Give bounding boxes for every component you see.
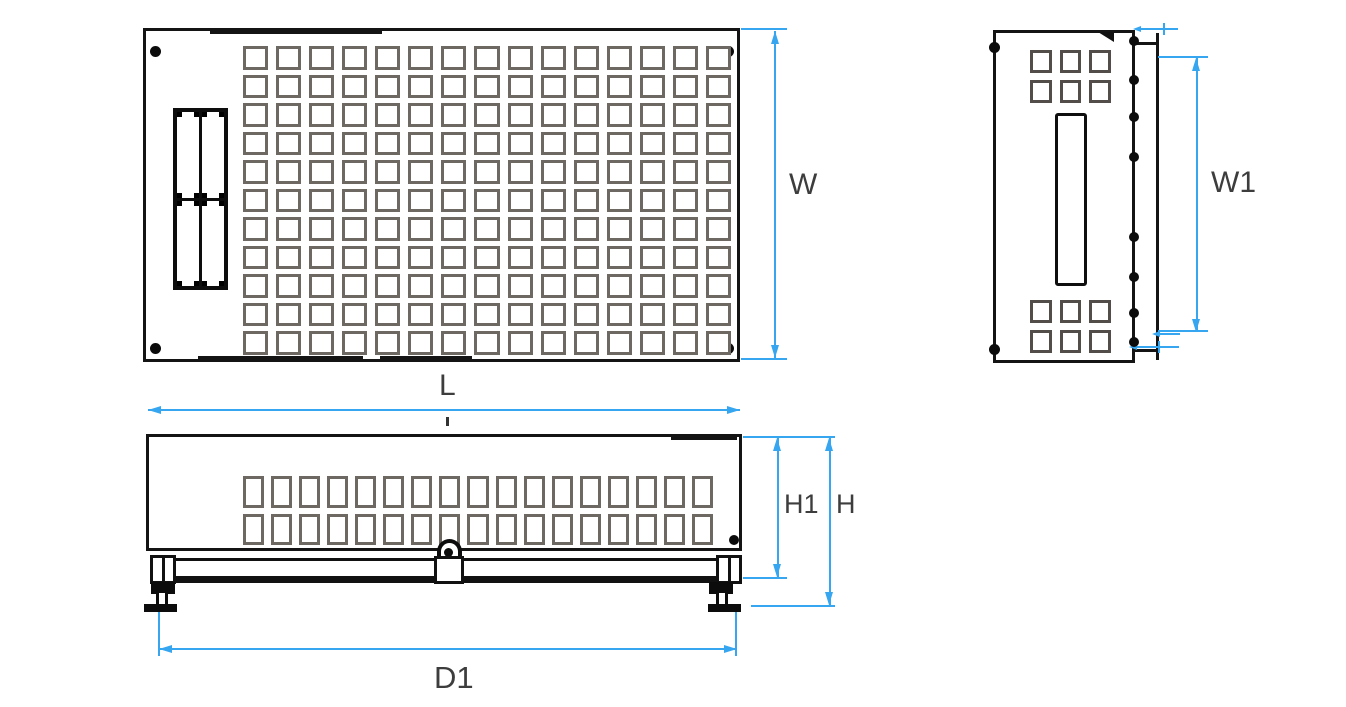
vent-hole xyxy=(706,217,731,241)
vent-hole xyxy=(574,274,599,298)
vent-hole xyxy=(541,103,566,127)
vent-hole xyxy=(474,189,499,213)
dimension-drawing: W W1 L xyxy=(0,0,1346,707)
vent-hole xyxy=(508,46,533,70)
vent-hole xyxy=(276,46,301,70)
vent-hole xyxy=(408,303,433,327)
vent-hole xyxy=(574,331,599,355)
vent-hole xyxy=(640,274,665,298)
vent-hole xyxy=(408,103,433,127)
vent-hole xyxy=(608,476,629,508)
vent-hole xyxy=(574,217,599,241)
vent-hole xyxy=(640,303,665,327)
vent-hole xyxy=(706,132,731,156)
vent-hole xyxy=(309,217,334,241)
vent-hole xyxy=(375,274,400,298)
vent-hole xyxy=(706,274,731,298)
vent-hole xyxy=(541,160,566,184)
vent-hole xyxy=(439,476,460,508)
vent-hole xyxy=(607,103,632,127)
edge-bump xyxy=(1129,36,1139,46)
vent-hole xyxy=(276,75,301,99)
vent-hole xyxy=(640,189,665,213)
corner-screw xyxy=(989,42,1000,53)
vent-hole xyxy=(375,303,400,327)
vent-hole xyxy=(607,217,632,241)
vent-hole xyxy=(607,189,632,213)
vent-hole xyxy=(640,132,665,156)
vent-hole xyxy=(276,246,301,270)
vent-hole xyxy=(541,246,566,270)
vent-hole xyxy=(355,476,376,508)
foot-right-base xyxy=(708,604,741,612)
vent-hole xyxy=(574,189,599,213)
vent-hole xyxy=(1060,50,1082,73)
vent-hole xyxy=(474,103,499,127)
vent-hole xyxy=(508,189,533,213)
vent-hole xyxy=(474,46,499,70)
corner-screw xyxy=(989,344,1000,355)
handle-panel xyxy=(177,112,199,198)
dimension-label-h: H xyxy=(836,487,856,521)
vent-hole xyxy=(243,132,268,156)
vent-hole xyxy=(574,75,599,99)
front-screw xyxy=(729,535,739,545)
vent-hole xyxy=(508,217,533,241)
vent-hole xyxy=(607,46,632,70)
vent-hole xyxy=(243,476,264,508)
vent-hole xyxy=(299,476,320,508)
vent-hole xyxy=(243,246,268,270)
vent-hole xyxy=(375,189,400,213)
vent-hole xyxy=(441,103,466,127)
vent-hole xyxy=(342,103,367,127)
vent-hole xyxy=(508,103,533,127)
vent-hole xyxy=(276,303,301,327)
dim-w-ext-top xyxy=(741,28,787,30)
top-view xyxy=(143,28,740,362)
dim-w-ext-bottom xyxy=(741,358,787,360)
vent-hole xyxy=(441,160,466,184)
vent-hole xyxy=(541,331,566,355)
panel-seam xyxy=(380,356,472,362)
vent-hole xyxy=(309,331,334,355)
vent-hole xyxy=(640,46,665,70)
vent-hole xyxy=(607,331,632,355)
vent-hole xyxy=(408,160,433,184)
panel-seam xyxy=(671,435,737,440)
arrow-right-icon xyxy=(727,406,740,414)
dim-w1-line xyxy=(1196,58,1198,332)
vent-hole xyxy=(1030,300,1052,323)
vent-hole xyxy=(508,303,533,327)
vent-hole xyxy=(552,476,573,508)
vent-hole xyxy=(574,303,599,327)
vent-hole xyxy=(524,514,545,546)
top-vent-grid xyxy=(243,46,731,355)
dim-h-ext-top xyxy=(743,436,835,438)
rail-bracket-left xyxy=(150,555,176,584)
vent-hole xyxy=(309,160,334,184)
vent-hole xyxy=(474,274,499,298)
vent-hole xyxy=(607,246,632,270)
vent-hole xyxy=(673,160,698,184)
vent-hole xyxy=(673,274,698,298)
vent-hole xyxy=(243,217,268,241)
vent-hole xyxy=(1060,80,1082,103)
dim-l-line xyxy=(148,409,740,411)
vent-hole xyxy=(474,246,499,270)
vent-hole xyxy=(664,476,685,508)
vent-hole xyxy=(375,160,400,184)
arrow-right-icon xyxy=(724,645,737,653)
vent-hole xyxy=(309,303,334,327)
vent-hole xyxy=(276,103,301,127)
vent-hole xyxy=(640,103,665,127)
vent-hole xyxy=(474,217,499,241)
vent-hole xyxy=(474,331,499,355)
vent-hole xyxy=(467,514,488,546)
vent-hole xyxy=(640,217,665,241)
vent-hole xyxy=(706,331,731,355)
vent-hole xyxy=(342,189,367,213)
vent-hole xyxy=(541,303,566,327)
vent-hole xyxy=(355,514,376,546)
vent-hole xyxy=(474,160,499,184)
vent-hole xyxy=(309,189,334,213)
vent-hole xyxy=(243,46,268,70)
vent-hole xyxy=(243,331,268,355)
vent-hole xyxy=(276,189,301,213)
vent-hole xyxy=(706,103,731,127)
vent-hole xyxy=(580,514,601,546)
vent-hole xyxy=(342,303,367,327)
arrow-up-icon xyxy=(825,438,833,451)
vent-hole xyxy=(574,246,599,270)
vent-hole xyxy=(375,132,400,156)
arrow-left-icon xyxy=(159,645,172,653)
vent-hole xyxy=(276,160,301,184)
vent-hole xyxy=(309,75,334,99)
vent-hole xyxy=(408,46,433,70)
handle-panel xyxy=(202,112,224,198)
vent-hole xyxy=(1089,330,1111,353)
latch-box xyxy=(434,556,464,584)
edge-bump xyxy=(1129,112,1139,122)
vent-hole xyxy=(607,303,632,327)
vent-hole xyxy=(243,274,268,298)
side-outer-edge xyxy=(1156,33,1159,360)
vent-hole xyxy=(574,132,599,156)
dim-h-line xyxy=(829,438,831,605)
foot-left-base xyxy=(144,604,177,612)
vent-hole xyxy=(574,46,599,70)
dim-h-ext-bottom xyxy=(751,605,835,607)
vent-hole xyxy=(441,75,466,99)
vent-hole xyxy=(607,132,632,156)
dimension-label-w1: W1 xyxy=(1211,166,1256,200)
vent-hole xyxy=(342,132,367,156)
edge-bump xyxy=(1129,232,1139,242)
vent-hole xyxy=(1089,80,1111,103)
vent-hole xyxy=(342,75,367,99)
corner-screw xyxy=(150,46,161,57)
dimension-label-w: W xyxy=(789,168,817,202)
vent-hole xyxy=(541,217,566,241)
rail-bracket-right xyxy=(716,555,742,584)
vent-hole xyxy=(706,189,731,213)
vent-hole xyxy=(375,331,400,355)
vent-hole xyxy=(271,476,292,508)
vent-hole xyxy=(342,46,367,70)
vent-hole xyxy=(474,303,499,327)
arrow-left-icon xyxy=(1133,26,1141,32)
front-vent-grid xyxy=(243,476,713,545)
vent-hole xyxy=(608,514,629,546)
vent-hole xyxy=(580,476,601,508)
vent-hole xyxy=(574,103,599,127)
vent-hole xyxy=(383,514,404,546)
vent-hole xyxy=(375,75,400,99)
vent-hole xyxy=(327,514,348,546)
vent-hole xyxy=(508,160,533,184)
dim-h1-line xyxy=(777,438,779,577)
vent-hole xyxy=(243,514,264,546)
dim-w1-tick xyxy=(1158,341,1160,353)
vent-hole xyxy=(411,476,432,508)
vent-hole xyxy=(327,476,348,508)
vent-hole xyxy=(309,246,334,270)
vent-hole xyxy=(1089,300,1111,323)
arrow-left-icon xyxy=(1152,331,1160,337)
vent-hole xyxy=(342,160,367,184)
vent-hole xyxy=(552,514,573,546)
vent-hole xyxy=(375,46,400,70)
vent-hole xyxy=(408,274,433,298)
vent-hole xyxy=(541,75,566,99)
vent-hole xyxy=(607,75,632,99)
vent-hole xyxy=(383,476,404,508)
vent-hole xyxy=(441,303,466,327)
vent-hole xyxy=(508,75,533,99)
vent-hole xyxy=(411,514,432,546)
dim-w1-tick xyxy=(1163,23,1165,35)
vent-hole xyxy=(299,514,320,546)
vent-hole xyxy=(541,274,566,298)
vent-hole xyxy=(1060,330,1082,353)
vent-hole xyxy=(342,274,367,298)
vent-hole xyxy=(243,103,268,127)
side-edge-connector xyxy=(1135,349,1158,352)
vent-hole xyxy=(640,75,665,99)
arrow-up-icon xyxy=(771,31,779,44)
vent-hole xyxy=(541,132,566,156)
edge-bump xyxy=(1129,337,1139,347)
handle-panel xyxy=(177,201,199,287)
vent-hole xyxy=(508,331,533,355)
vent-hole xyxy=(640,160,665,184)
vent-hole xyxy=(496,476,517,508)
vent-hole xyxy=(673,75,698,99)
vent-hole xyxy=(408,331,433,355)
vent-hole xyxy=(640,331,665,355)
vent-hole xyxy=(692,514,713,546)
vent-hole xyxy=(706,303,731,327)
panel-seam xyxy=(210,28,382,34)
vent-hole xyxy=(276,331,301,355)
vent-hole xyxy=(607,160,632,184)
vent-hole xyxy=(467,476,488,508)
vent-hole xyxy=(271,514,292,546)
vent-hole xyxy=(408,189,433,213)
vent-hole xyxy=(508,132,533,156)
side-slot xyxy=(1055,113,1087,286)
dim-w1-ext-top xyxy=(1158,56,1208,58)
edge-bump xyxy=(1129,272,1139,282)
arrow-down-icon xyxy=(773,564,781,577)
dim-w-line xyxy=(774,31,776,358)
vent-hole xyxy=(276,274,301,298)
dim-w1-ext-bottom xyxy=(1158,330,1208,332)
corner-wedge xyxy=(1098,32,1114,42)
vent-hole xyxy=(541,46,566,70)
vent-hole xyxy=(673,189,698,213)
dim-w1-tick-bottom-a xyxy=(1160,333,1180,335)
vent-hole xyxy=(375,246,400,270)
arrow-down-icon xyxy=(771,345,779,358)
vent-hole xyxy=(243,303,268,327)
vent-hole xyxy=(673,303,698,327)
side-vent-grid-top xyxy=(1030,50,1111,103)
vent-hole xyxy=(496,514,517,546)
vent-hole xyxy=(309,274,334,298)
vent-hole xyxy=(1030,50,1052,73)
vent-hole xyxy=(607,274,632,298)
vent-hole xyxy=(706,46,731,70)
dim-h1-ext-bottom xyxy=(743,577,787,579)
vent-hole xyxy=(673,132,698,156)
arrow-up-icon xyxy=(773,438,781,451)
vent-hole xyxy=(524,476,545,508)
vent-hole xyxy=(276,217,301,241)
front-view xyxy=(146,434,742,551)
vent-hole xyxy=(441,274,466,298)
vent-hole xyxy=(342,217,367,241)
vent-hole xyxy=(243,75,268,99)
dimension-label-d1: D1 xyxy=(434,661,474,695)
vent-hole xyxy=(441,189,466,213)
dim-d1-line xyxy=(159,648,737,650)
vent-hole xyxy=(243,160,268,184)
vent-hole xyxy=(1030,330,1052,353)
vent-hole xyxy=(441,246,466,270)
vent-hole xyxy=(375,103,400,127)
edge-bump xyxy=(1129,308,1139,318)
dimension-label-l: L xyxy=(439,369,456,403)
vent-hole xyxy=(640,246,665,270)
arrow-down-icon xyxy=(825,592,833,605)
vent-hole xyxy=(1030,80,1052,103)
edge-bump xyxy=(1129,75,1139,85)
vent-hole xyxy=(636,476,657,508)
vent-hole xyxy=(375,217,400,241)
vent-hole xyxy=(508,246,533,270)
panel-seam xyxy=(198,356,363,362)
center-tick xyxy=(446,417,449,426)
vent-hole xyxy=(706,160,731,184)
side-view xyxy=(993,30,1135,363)
vent-hole xyxy=(664,514,685,546)
vent-hole xyxy=(1089,50,1111,73)
vent-hole xyxy=(342,331,367,355)
vent-hole xyxy=(408,217,433,241)
vent-hole xyxy=(673,46,698,70)
vent-hole xyxy=(574,160,599,184)
vent-hole xyxy=(441,331,466,355)
vent-hole xyxy=(1060,300,1082,323)
side-vent-grid-bottom xyxy=(1030,300,1111,353)
vent-hole xyxy=(408,75,433,99)
vent-hole xyxy=(636,514,657,546)
vent-hole xyxy=(309,46,334,70)
vent-hole xyxy=(243,189,268,213)
vent-hole xyxy=(706,246,731,270)
vent-hole xyxy=(474,132,499,156)
vent-hole xyxy=(673,331,698,355)
edge-bump xyxy=(1129,152,1139,162)
vent-hole xyxy=(441,217,466,241)
vent-hole xyxy=(441,46,466,70)
vent-hole xyxy=(408,246,433,270)
vent-hole xyxy=(408,132,433,156)
vent-hole xyxy=(309,132,334,156)
arrow-down-icon xyxy=(1192,319,1200,332)
vent-hole xyxy=(692,476,713,508)
vent-hole xyxy=(474,75,499,99)
vent-hole xyxy=(276,132,301,156)
corner-screw xyxy=(150,343,161,354)
vent-hole xyxy=(342,246,367,270)
dim-w1-tick-top xyxy=(1140,28,1178,30)
arrow-left-icon xyxy=(148,406,161,414)
arrow-up-icon xyxy=(1192,58,1200,71)
vent-hole xyxy=(673,217,698,241)
vent-hole xyxy=(673,246,698,270)
dimension-label-h1: H1 xyxy=(784,487,819,521)
vent-hole xyxy=(673,103,698,127)
vent-hole xyxy=(309,103,334,127)
vent-hole xyxy=(508,274,533,298)
vent-hole xyxy=(541,189,566,213)
handle xyxy=(173,108,228,290)
handle-panel xyxy=(202,201,224,287)
vent-hole xyxy=(441,132,466,156)
vent-hole xyxy=(706,75,731,99)
